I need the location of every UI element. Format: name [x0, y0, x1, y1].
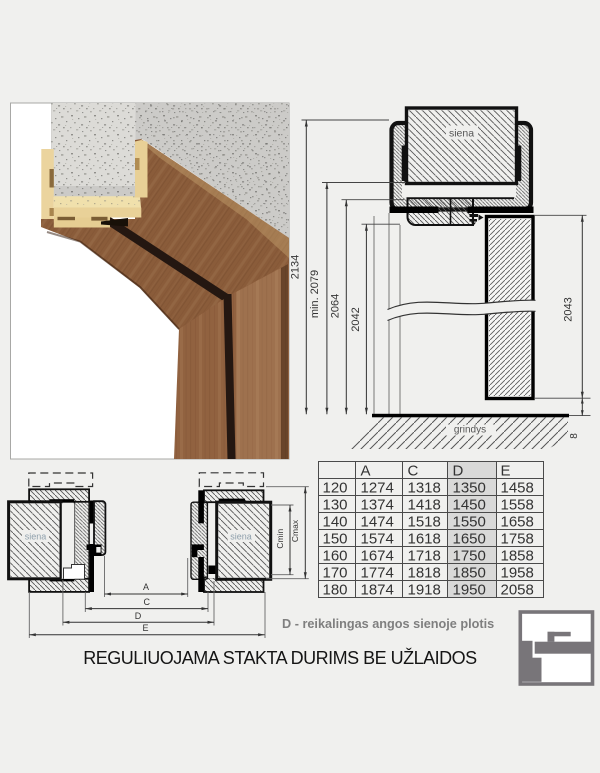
svg-text:1774: 1774	[361, 564, 394, 581]
svg-text:1874: 1874	[361, 581, 394, 598]
svg-text:1850: 1850	[453, 564, 486, 581]
svg-text:1350: 1350	[453, 479, 486, 496]
svg-text:1318: 1318	[408, 479, 441, 496]
svg-text:REGULIUOJAMA STAKTA DURIMS BE: REGULIUOJAMA STAKTA DURIMS BE UŽLAIDOS	[83, 648, 477, 668]
svg-text:1458: 1458	[501, 479, 534, 496]
svg-text:E: E	[501, 462, 511, 479]
svg-text:2043: 2043	[563, 297, 575, 321]
svg-text:Cmax: Cmax	[290, 519, 300, 542]
svg-text:1718: 1718	[408, 547, 441, 564]
svg-text:120: 120	[323, 479, 348, 496]
svg-text:A: A	[361, 462, 371, 479]
svg-text:140: 140	[323, 513, 348, 530]
svg-text:2064: 2064	[330, 294, 342, 318]
svg-text:1618: 1618	[408, 530, 441, 547]
svg-text:min. 2079: min. 2079	[309, 270, 321, 318]
svg-text:1950: 1950	[453, 581, 486, 598]
svg-text:1274: 1274	[361, 479, 394, 496]
svg-text:1550: 1550	[453, 513, 486, 530]
svg-text:1958: 1958	[501, 564, 534, 581]
svg-text:1818: 1818	[408, 564, 441, 581]
svg-text:1658: 1658	[501, 513, 534, 530]
svg-text:E: E	[142, 623, 148, 633]
svg-text:1750: 1750	[453, 547, 486, 564]
svg-text:siena: siena	[230, 532, 252, 542]
svg-text:1418: 1418	[408, 496, 441, 513]
svg-text:1474: 1474	[361, 513, 394, 530]
svg-text:2134: 2134	[290, 255, 302, 279]
svg-text:150: 150	[323, 530, 348, 547]
svg-text:1558: 1558	[501, 496, 534, 513]
svg-text:8: 8	[569, 433, 580, 439]
svg-text:2058: 2058	[501, 581, 534, 598]
svg-text:D - reikalingas angos sienoje: D - reikalingas angos sienoje plotis	[282, 617, 494, 631]
svg-text:1518: 1518	[408, 513, 441, 530]
svg-text:C: C	[408, 462, 419, 479]
svg-text:180: 180	[323, 581, 348, 598]
svg-text:1674: 1674	[361, 547, 394, 564]
svg-text:1450: 1450	[453, 496, 486, 513]
svg-text:1758: 1758	[501, 530, 534, 547]
svg-text:grindys: grindys	[454, 425, 486, 436]
svg-text:2042: 2042	[350, 307, 362, 331]
svg-text:1650: 1650	[453, 530, 486, 547]
svg-text:siena: siena	[449, 128, 474, 140]
svg-text:1858: 1858	[501, 547, 534, 564]
svg-text:1374: 1374	[361, 496, 394, 513]
svg-text:A: A	[143, 582, 149, 592]
svg-text:1574: 1574	[361, 530, 394, 547]
svg-text:C: C	[143, 597, 150, 607]
svg-text:D: D	[135, 611, 142, 621]
svg-text:Cmin: Cmin	[275, 529, 285, 549]
svg-text:170: 170	[323, 564, 348, 581]
svg-text:130: 130	[323, 496, 348, 513]
svg-text:siena: siena	[25, 532, 47, 542]
svg-text:160: 160	[323, 547, 348, 564]
svg-text:1918: 1918	[408, 581, 441, 598]
svg-text:D: D	[453, 462, 464, 479]
